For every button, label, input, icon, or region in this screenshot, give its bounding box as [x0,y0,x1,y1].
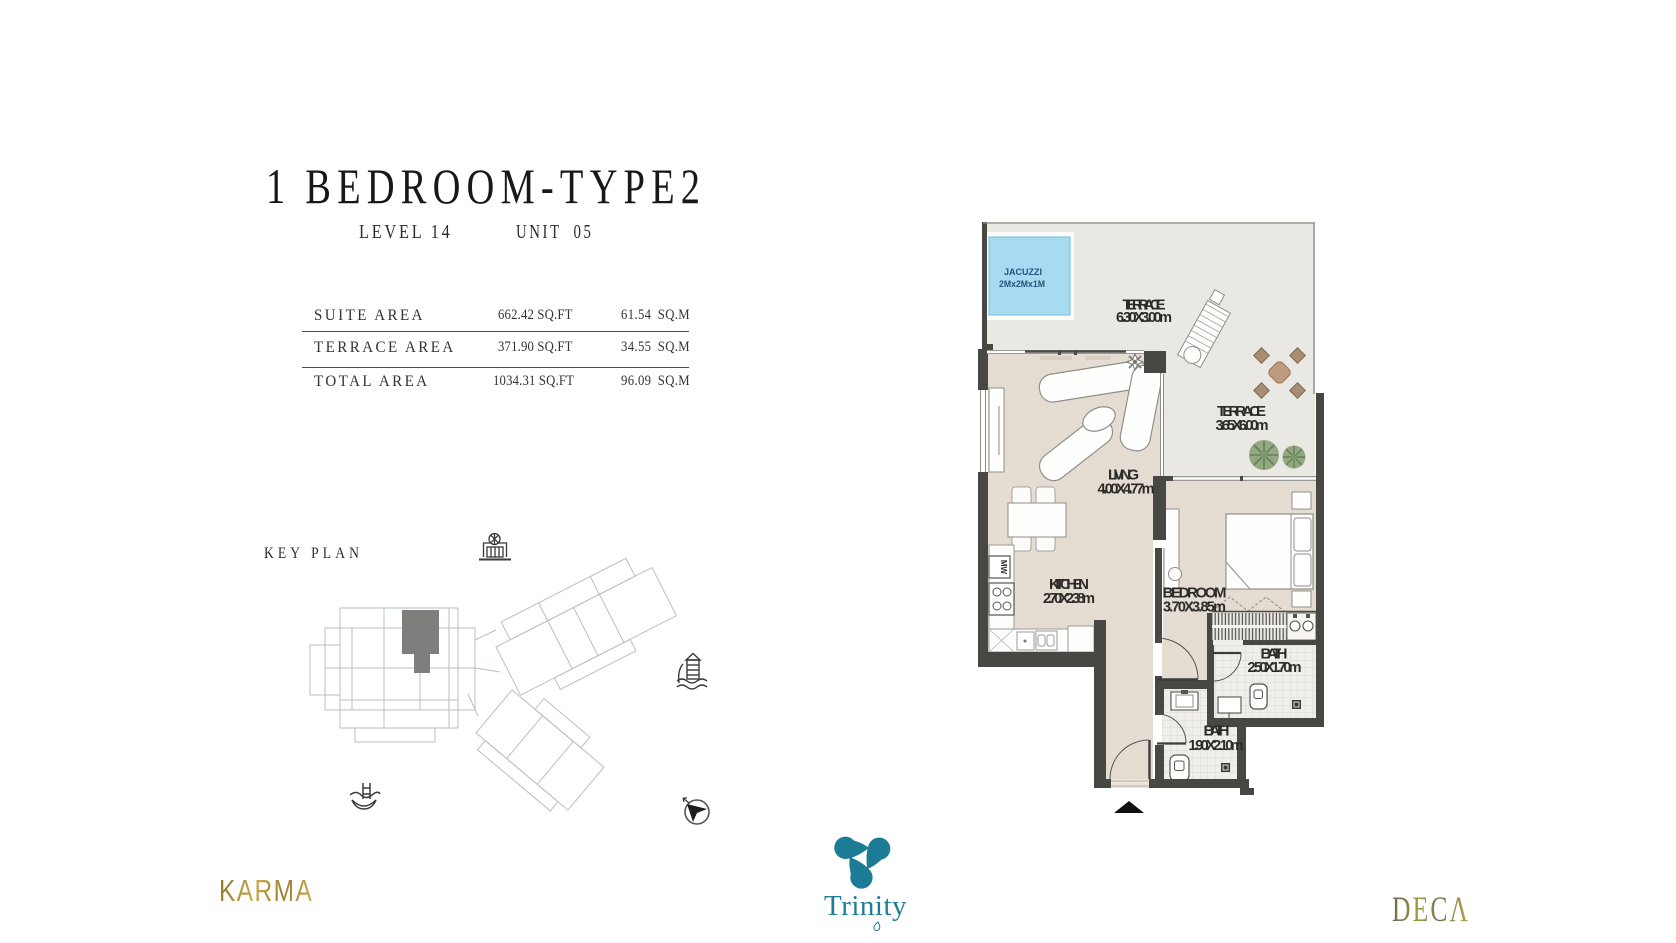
svg-text:MW: MW [999,560,1008,575]
svg-text:BATH: BATH [1204,723,1230,740]
svg-text:4.00X4.77m: 4.00X4.77m [1098,482,1155,498]
svg-text:1.90X2.10m: 1.90X2.10m [1189,738,1244,754]
svg-text:2.70X2.38m: 2.70X2.38m [1043,591,1095,607]
svg-text:3.65X6.00m: 3.65X6.00m [1216,418,1269,434]
svg-text:3.70X3.85m: 3.70X3.85m [1163,600,1226,616]
svg-text:2Mx2Mx1M: 2Mx2Mx1M [999,279,1045,290]
svg-text:6.30X3.00m: 6.30X3.00m [1116,310,1172,326]
svg-text:2.50X1.70m: 2.50X1.70m [1248,660,1302,676]
svg-text:JACUZZI: JACUZZI [1004,267,1042,277]
